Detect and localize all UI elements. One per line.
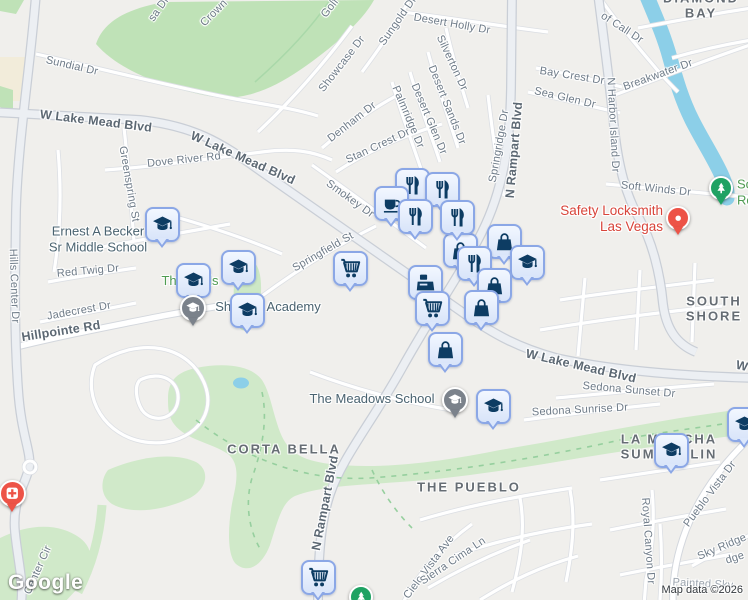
school-pin-shenker-academy[interactable] — [180, 295, 206, 321]
shopping-bag-poi-marker[interactable] — [428, 332, 463, 378]
school-poi-marker[interactable] — [654, 433, 689, 479]
map-attribution: Map data ©2026 — [662, 584, 744, 596]
grocery-poi-marker[interactable] — [415, 291, 450, 337]
google-logo[interactable]: Google — [8, 571, 83, 595]
school-poi-marker[interactable] — [727, 407, 748, 453]
park-pin[interactable] — [349, 585, 373, 600]
shopping-bag-poi-marker[interactable] — [464, 290, 499, 336]
restaurant-poi-marker[interactable] — [398, 199, 433, 245]
school-poi-marker[interactable] — [476, 389, 511, 435]
restaurant-poi-marker[interactable] — [440, 200, 475, 246]
school-pin-the-meadows-school[interactable] — [442, 387, 468, 413]
school-poi-marker[interactable] — [145, 207, 180, 253]
map-markers-layer — [0, 0, 748, 600]
school-poi-marker[interactable] — [230, 293, 265, 339]
hospital-pin[interactable] — [0, 480, 26, 507]
business-pin-safety-locksmith[interactable] — [666, 206, 690, 230]
grocery-poi-marker[interactable] — [301, 560, 336, 600]
school-poi-marker[interactable] — [221, 250, 256, 296]
grocery-poi-marker[interactable] — [333, 251, 368, 297]
map-canvas[interactable]: Sundial DrW Lake Mead BlvdW Lake Mead Bl… — [0, 0, 748, 600]
school-poi-marker[interactable] — [510, 245, 545, 291]
park-pin[interactable] — [709, 176, 733, 200]
